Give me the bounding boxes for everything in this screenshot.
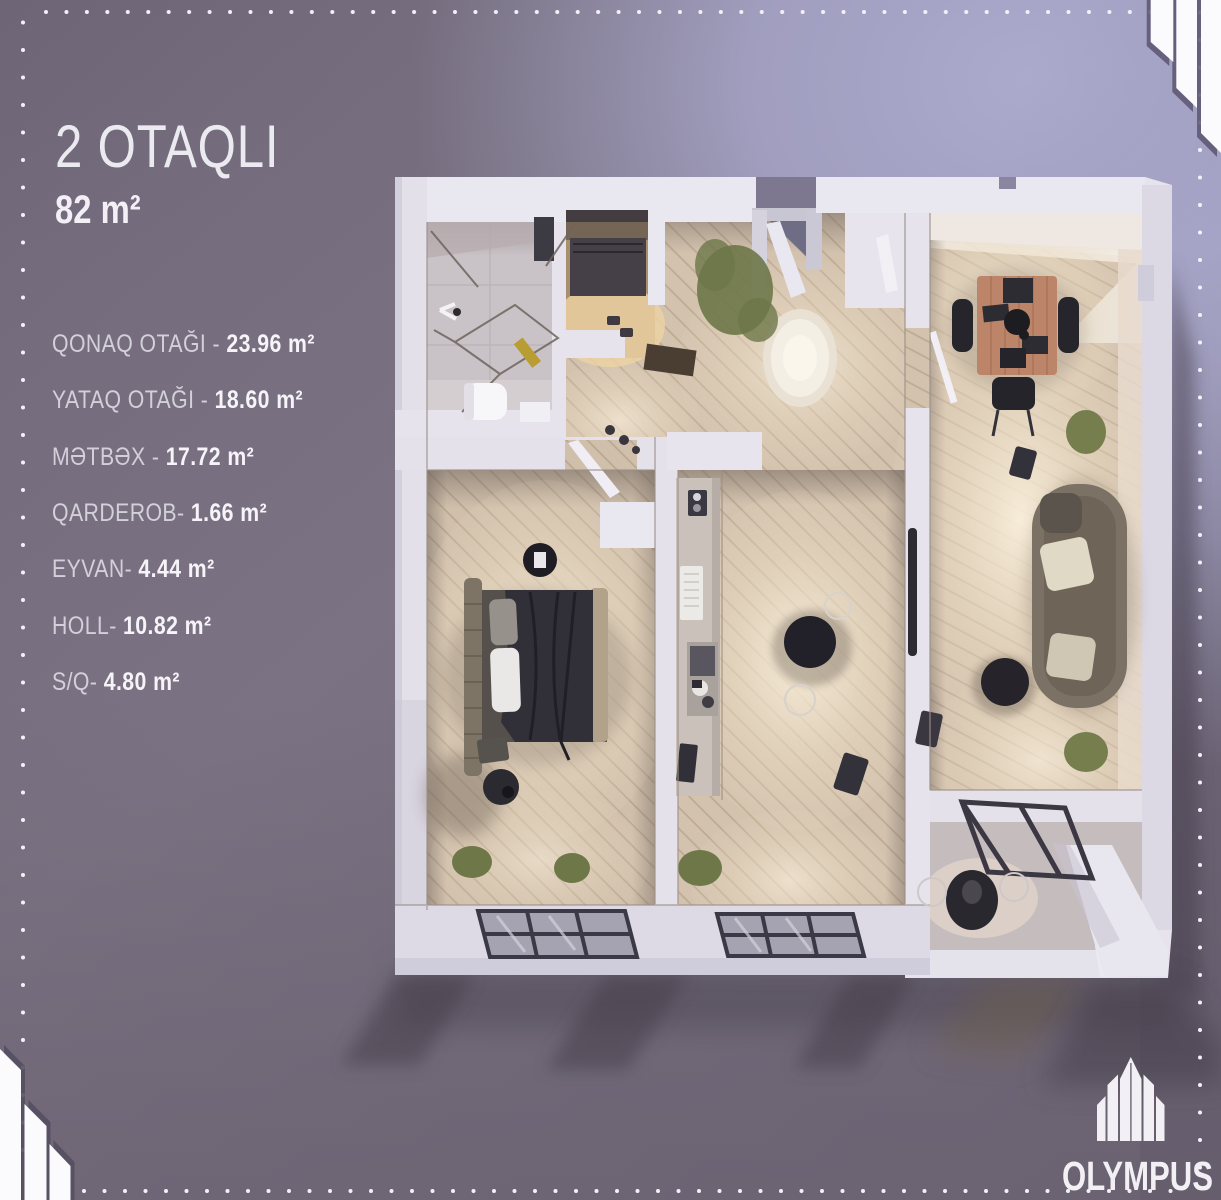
svg-text:OLYMPUS: OLYMPUS (1062, 1153, 1213, 1199)
